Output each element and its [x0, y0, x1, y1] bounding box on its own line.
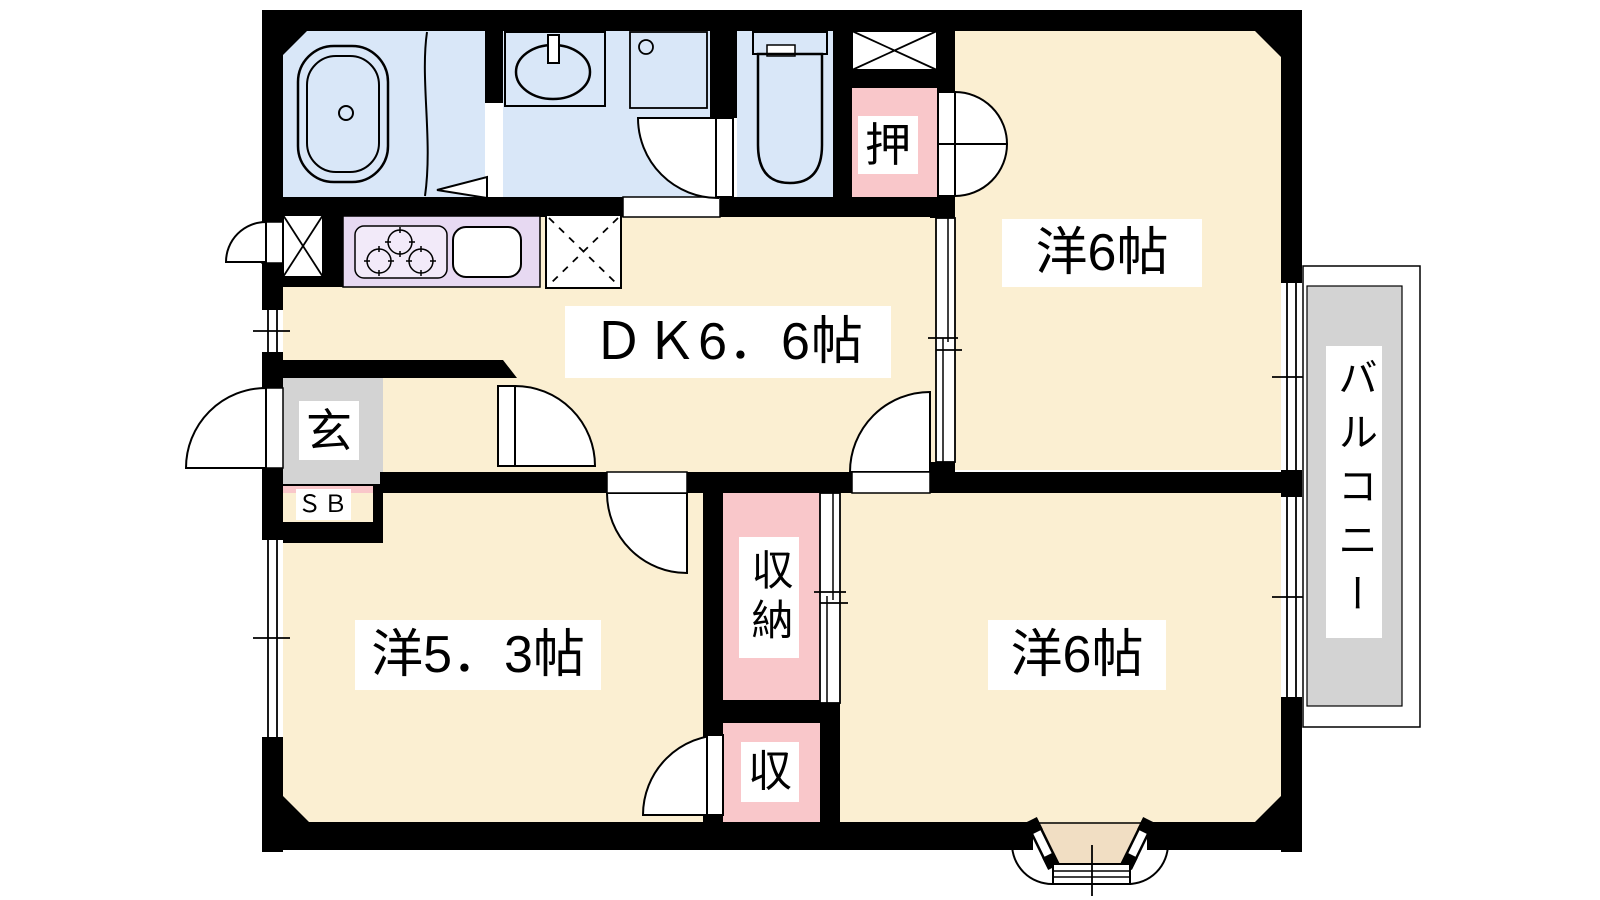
storage-small-door-leaf	[707, 735, 723, 815]
kitchen-counter-icon	[343, 216, 540, 287]
storage-door-swing-icon	[226, 222, 266, 262]
kitchen-sink-icon	[453, 227, 521, 277]
bathroom-floor	[283, 31, 485, 197]
floorplan: ＤＫ6．6帖 洋6帖 洋6帖 洋5．3帖 押 玄 ＳＢ 収納 収 バルコニー	[0, 0, 1600, 900]
pipe-space-icon	[852, 31, 937, 70]
room-label-western-bottom: 洋6帖	[988, 620, 1166, 690]
room-label-balcony: バルコニー	[1326, 346, 1382, 638]
room-label-storage-small: 収	[741, 742, 799, 802]
room-label-entrance: 玄	[299, 401, 359, 460]
room-small-door-leaf	[607, 472, 687, 493]
entrance-door-swing-icon	[186, 388, 266, 468]
room-label-shoe-box: ＳＢ	[296, 489, 351, 520]
room-label-storage-tall: 収納	[739, 537, 799, 658]
room-label-dk: ＤＫ6．6帖	[565, 306, 891, 378]
washroom-door-leaf	[716, 118, 733, 197]
room-label-western-small: 洋5．3帖	[355, 620, 601, 690]
bay-window	[1012, 820, 1168, 896]
washroom-door-gap	[623, 197, 720, 217]
hall-door-leaf	[498, 386, 515, 466]
refrigerator-space-icon	[546, 215, 621, 288]
washer-pan-icon	[283, 215, 323, 277]
room-bottom-door-leaf	[852, 472, 930, 493]
room-label-oshiire: 押	[858, 116, 918, 174]
room-label-western-top: 洋6帖	[1002, 219, 1202, 287]
